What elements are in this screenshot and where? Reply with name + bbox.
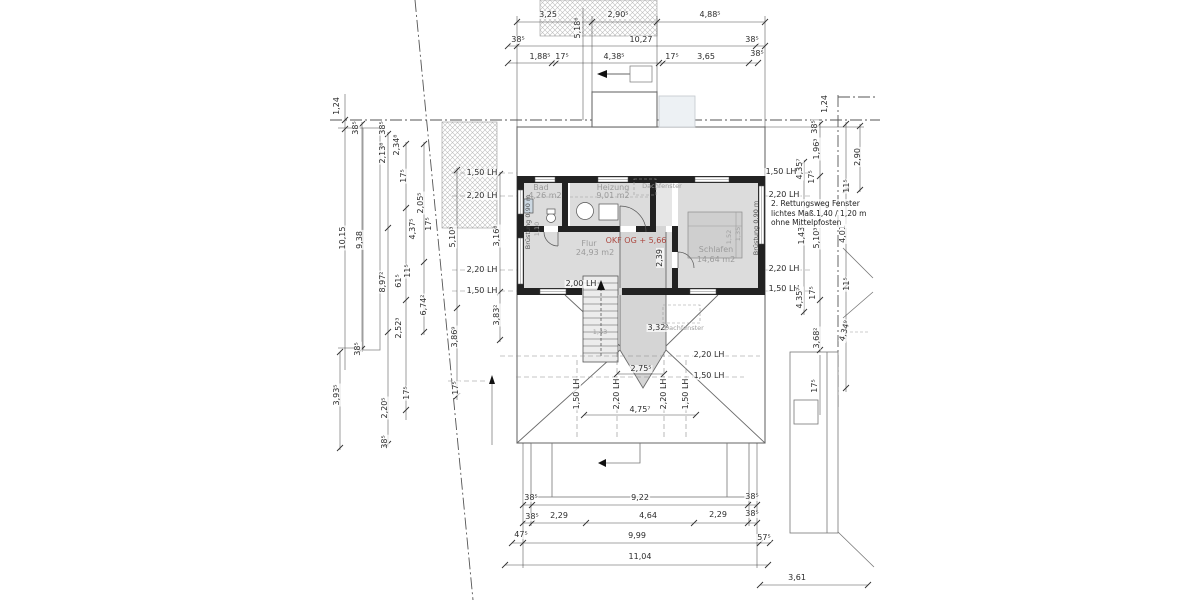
- right-extension: [790, 248, 874, 567]
- neighbor-hatch-top: [540, 0, 657, 36]
- entrance-arrow: [598, 459, 606, 467]
- neighbor-wall: [363, 128, 380, 350]
- heating-unit: [599, 204, 618, 220]
- chimney: [592, 92, 657, 127]
- rescue-window-annotation: 2. Rettungsweg Fensterlichtes Maß.1,40 /…: [771, 199, 866, 228]
- annotation-line: 2. Rettungsweg Fenster: [771, 199, 866, 209]
- bed: [688, 212, 742, 258]
- lower-floor-outline: [531, 443, 749, 497]
- wc: [547, 214, 556, 223]
- plan-linework: [0, 0, 1200, 600]
- annotation-line: ohne Mittelpfosten: [771, 218, 866, 228]
- annotation-line: lichtes Maß.1,40 / 1,20 m: [771, 209, 866, 219]
- boiler: [577, 203, 594, 220]
- top-entrance-marker: [597, 66, 652, 82]
- bath-fixture: [524, 199, 533, 213]
- floor-plan-canvas: 3,252,90⁵4,88⁵5,18⁶38⁵10,2738⁵1,88⁵17⁵4,…: [0, 0, 1200, 600]
- neighbor-hatch-left: [442, 122, 497, 228]
- skylight-box: [659, 96, 695, 127]
- staircase: [583, 276, 618, 362]
- left-marker: [489, 375, 495, 445]
